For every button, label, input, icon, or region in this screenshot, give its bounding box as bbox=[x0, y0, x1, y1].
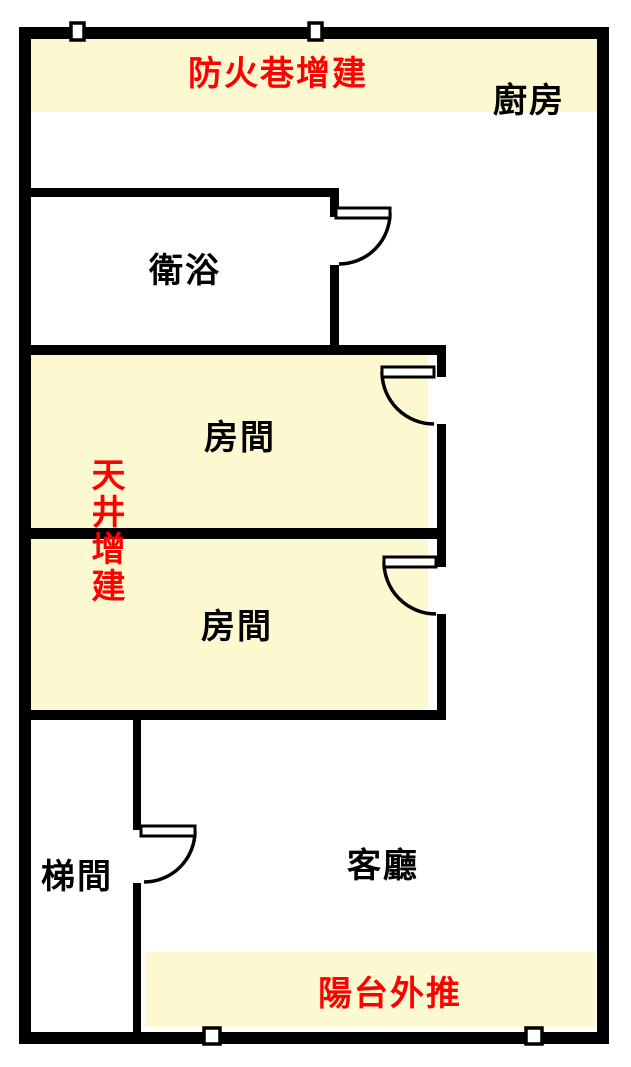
window-icon-top-left bbox=[71, 23, 84, 40]
wall-room2-right-upper bbox=[437, 528, 446, 567]
room-label-room2: 房間 bbox=[201, 610, 273, 644]
door-leaf-icon bbox=[336, 208, 390, 218]
annotation-fire-lane-addition: 防火巷增建 bbox=[188, 57, 368, 91]
wall-room1-top bbox=[19, 345, 446, 355]
door-leaf-icon bbox=[141, 826, 195, 836]
window-icon-bottom-right bbox=[526, 1028, 542, 1044]
door-leaf-icon bbox=[384, 557, 436, 567]
door-stairwell bbox=[141, 826, 195, 882]
door-leaf-icon bbox=[382, 367, 434, 377]
wall-room1-right-lower bbox=[437, 424, 446, 539]
wall-room1-right-upper bbox=[437, 345, 446, 377]
door-swing-arc bbox=[339, 213, 390, 264]
wall-bathroom-top bbox=[19, 188, 339, 197]
wall-room2-right-lower bbox=[437, 614, 446, 720]
wall-room2-bottom bbox=[19, 710, 446, 720]
door-bathroom bbox=[336, 208, 390, 264]
annotation-skylight-addition: 天井增建 bbox=[89, 457, 123, 607]
wall-stairwell-lower bbox=[133, 883, 141, 1032]
wall-stairwell-upper bbox=[133, 720, 141, 830]
wall-bathroom-right-lower bbox=[330, 265, 339, 355]
room-label-room1: 房間 bbox=[204, 421, 276, 455]
room-label-bathroom: 衛浴 bbox=[149, 254, 221, 288]
window-icon-bottom-left bbox=[204, 1028, 220, 1044]
door-swing-arc bbox=[144, 831, 195, 882]
annotation-balcony-pushout: 陽台外推 bbox=[318, 977, 462, 1011]
room-label-living-room: 客廳 bbox=[347, 849, 419, 883]
floor-plan: 防火巷增建 天井增建 陽台外推 廚房 衛浴 房間 房間 梯間 客廳 bbox=[0, 0, 631, 1067]
room-label-kitchen: 廚房 bbox=[493, 84, 565, 118]
room-label-stairwell: 梯間 bbox=[41, 860, 113, 894]
window-icon-top-center bbox=[309, 23, 322, 40]
wall-between-rooms bbox=[19, 528, 446, 539]
